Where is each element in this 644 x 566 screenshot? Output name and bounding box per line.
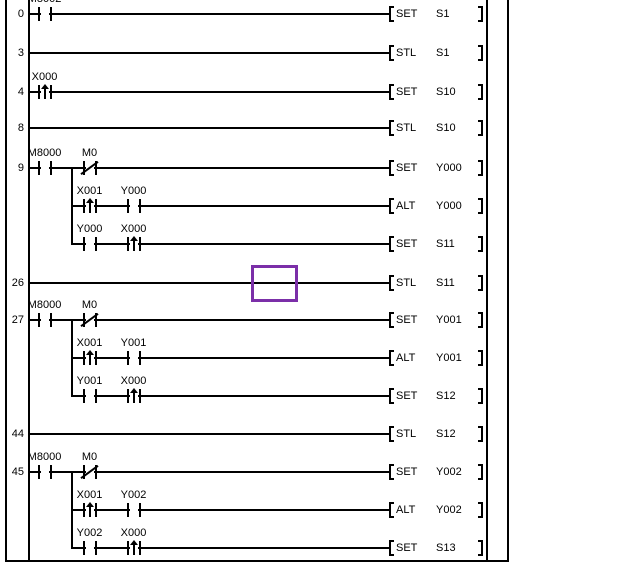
contact-no[interactable]: Y002 — [123, 488, 145, 525]
instruction-close-bracket — [478, 6, 483, 22]
instruction-open-bracket — [389, 198, 394, 214]
step-number: 0 — [2, 8, 24, 20]
contact-bar — [127, 237, 129, 251]
instruction-close-bracket — [478, 312, 483, 328]
instruction-open-bracket — [389, 350, 394, 366]
instruction-open-bracket — [389, 426, 394, 442]
up-arrow-icon — [130, 236, 138, 241]
contact-bar — [139, 237, 141, 251]
instruction-close-bracket — [478, 45, 483, 61]
contact-nc[interactable]: M0 — [79, 146, 101, 183]
contact-bar — [95, 237, 97, 251]
instruction-mnemonic[interactable]: STL — [396, 122, 416, 134]
instruction-close-bracket — [478, 464, 483, 480]
step-number: 4 — [2, 86, 24, 98]
contact-pulse[interactable]: X000 — [123, 222, 145, 259]
contact-bar — [50, 161, 52, 175]
instruction-close-bracket — [478, 236, 483, 252]
contact-no[interactable]: M8000 — [34, 146, 56, 183]
contact-label: Y002 — [104, 489, 164, 501]
contact-bar — [127, 351, 129, 365]
contact-label: M0 — [60, 299, 120, 311]
rung-line — [71, 243, 391, 245]
up-arrow-icon — [89, 355, 91, 365]
instruction-mnemonic[interactable]: SET — [396, 542, 417, 554]
instruction-operand[interactable]: Y000 — [436, 162, 462, 174]
contact-label: Y000 — [104, 185, 164, 197]
contact-no[interactable]: M8000 — [34, 298, 56, 335]
instruction-mnemonic[interactable]: SET — [396, 314, 417, 326]
contact-bar — [38, 465, 40, 479]
up-arrow-icon — [41, 84, 49, 89]
branch-line — [71, 167, 73, 245]
contact-bar — [139, 541, 141, 555]
instruction-close-bracket — [478, 502, 483, 518]
contact-bar — [50, 313, 52, 327]
instruction-mnemonic[interactable]: SET — [396, 86, 417, 98]
contact-bar — [50, 7, 52, 21]
editor-right-border — [507, 0, 509, 562]
rung-line — [28, 127, 391, 129]
step-number: 45 — [2, 466, 24, 478]
instruction-mnemonic[interactable]: STL — [396, 428, 416, 440]
contact-label: X000 — [15, 71, 75, 83]
instruction-open-bracket — [389, 160, 394, 176]
contact-no[interactable]: Y001 — [79, 374, 101, 411]
instruction-open-bracket — [389, 502, 394, 518]
instruction-open-bracket — [389, 45, 394, 61]
instruction-close-bracket — [478, 160, 483, 176]
rung-line — [71, 547, 391, 549]
instruction-mnemonic[interactable]: SET — [396, 390, 417, 402]
contact-bar — [83, 351, 85, 365]
instruction-mnemonic[interactable]: SET — [396, 466, 417, 478]
contact-bar — [95, 541, 97, 555]
step-number: 3 — [2, 47, 24, 59]
contact-bar — [38, 7, 40, 21]
contact-gap — [86, 242, 94, 246]
step-number: 27 — [2, 314, 24, 326]
contact-gap — [130, 508, 138, 512]
contact-bar — [83, 541, 85, 555]
step-number: 44 — [2, 428, 24, 440]
up-arrow-icon — [130, 388, 138, 393]
contact-bar — [127, 541, 129, 555]
contact-pulse[interactable]: X001 — [79, 488, 101, 525]
contact-bar — [83, 199, 85, 213]
step-number: 26 — [2, 277, 24, 289]
contact-bar — [95, 503, 97, 517]
instruction-open-bracket — [389, 464, 394, 480]
instruction-mnemonic[interactable]: ALT — [396, 352, 415, 364]
contact-pulse[interactable]: X000 — [123, 374, 145, 411]
instruction-operand[interactable]: S10 — [436, 122, 456, 134]
instruction-operand[interactable]: Y000 — [436, 200, 462, 212]
instruction-operand[interactable]: S11 — [436, 238, 455, 250]
rung-line — [28, 13, 391, 15]
contact-gap — [41, 318, 49, 322]
instruction-mnemonic[interactable]: STL — [396, 277, 416, 289]
instruction-open-bracket — [389, 275, 394, 291]
instruction-operand[interactable]: Y002 — [436, 504, 462, 516]
up-arrow-icon — [133, 241, 135, 251]
instruction-close-bracket — [478, 84, 483, 100]
rung-line — [71, 509, 391, 511]
contact-bar — [95, 199, 97, 213]
rung-line — [71, 395, 391, 397]
ladder-editor-canvas: 0SETS1M80023STLS14SETS10X0008STLS109SETY… — [0, 0, 644, 566]
contact-no[interactable]: Y001 — [123, 336, 145, 373]
contact-gap — [86, 394, 94, 398]
rung-line — [71, 357, 391, 359]
instruction-operand[interactable]: S1 — [436, 47, 449, 59]
instruction-operand[interactable]: S12 — [436, 428, 456, 440]
instruction-close-bracket — [478, 275, 483, 291]
contact-bar — [38, 161, 40, 175]
contact-no[interactable]: Y002 — [79, 526, 101, 563]
contact-bar — [139, 351, 141, 365]
branch-line — [71, 471, 73, 549]
instruction-operand[interactable]: S13 — [436, 542, 456, 554]
instruction-mnemonic[interactable]: SET — [396, 8, 417, 20]
contact-gap — [41, 166, 49, 170]
instruction-operand[interactable]: S11 — [436, 277, 455, 289]
contact-pulse[interactable]: X001 — [79, 184, 101, 221]
up-arrow-icon — [133, 393, 135, 403]
instruction-operand[interactable]: S12 — [436, 390, 456, 402]
right-power-rail — [486, 0, 488, 562]
rung-line — [28, 52, 391, 54]
rung-line — [71, 205, 391, 207]
up-arrow-icon — [89, 507, 91, 517]
up-arrow-icon — [89, 203, 91, 213]
contact-bar — [95, 389, 97, 403]
contact-bar — [83, 503, 85, 517]
instruction-operand[interactable]: S10 — [436, 86, 456, 98]
instruction-open-bracket — [389, 6, 394, 22]
contact-nc[interactable]: M0 — [79, 450, 101, 487]
up-arrow-icon — [130, 540, 138, 545]
rung-line — [28, 433, 391, 435]
contact-label: M8002 — [15, 0, 75, 5]
instruction-close-bracket — [478, 426, 483, 442]
instruction-close-bracket — [478, 540, 483, 556]
up-arrow-icon — [86, 198, 94, 203]
contact-bar — [95, 351, 97, 365]
instruction-operand[interactable]: Y001 — [436, 352, 462, 364]
instruction-mnemonic[interactable]: SET — [396, 238, 417, 250]
contact-bar — [139, 389, 141, 403]
contact-bar — [127, 389, 129, 403]
contact-label: M0 — [60, 451, 120, 463]
branch-line — [71, 319, 73, 397]
step-number: 8 — [2, 122, 24, 134]
step-number: 9 — [2, 162, 24, 174]
contact-pulse[interactable]: X000 — [34, 70, 56, 107]
contact-bar — [127, 199, 129, 213]
instruction-mnemonic[interactable]: STL — [396, 47, 416, 59]
instruction-open-bracket — [389, 312, 394, 328]
instruction-mnemonic[interactable]: ALT — [396, 504, 415, 516]
contact-gap — [130, 204, 138, 208]
contact-label: Y001 — [104, 337, 164, 349]
instruction-open-bracket — [389, 236, 394, 252]
contact-no[interactable]: M8000 — [34, 450, 56, 487]
instruction-operand[interactable]: S1 — [436, 8, 449, 20]
contact-bar — [83, 389, 85, 403]
contact-bar — [50, 465, 52, 479]
contact-no[interactable]: Y000 — [123, 184, 145, 221]
contact-pulse[interactable]: X000 — [123, 526, 145, 563]
contact-bar — [38, 85, 40, 99]
rung-line — [28, 91, 391, 93]
up-arrow-icon — [133, 545, 135, 555]
contact-no[interactable]: Y000 — [79, 222, 101, 259]
instruction-open-bracket — [389, 540, 394, 556]
up-arrow-icon — [86, 350, 94, 355]
contact-bar — [83, 237, 85, 251]
edit-cursor[interactable] — [251, 265, 298, 302]
contact-nc[interactable]: M0 — [79, 298, 101, 335]
contact-gap — [86, 546, 94, 550]
instruction-open-bracket — [389, 120, 394, 136]
contact-label: X000 — [104, 527, 164, 539]
instruction-close-bracket — [478, 120, 483, 136]
contact-pulse[interactable]: X001 — [79, 336, 101, 373]
instruction-close-bracket — [478, 350, 483, 366]
contact-bar — [50, 85, 52, 99]
contact-bar — [139, 199, 141, 213]
instruction-operand[interactable]: Y001 — [436, 314, 462, 326]
up-arrow-icon — [44, 89, 46, 99]
instruction-mnemonic[interactable]: SET — [396, 162, 417, 174]
contact-gap — [41, 12, 49, 16]
instruction-open-bracket — [389, 84, 394, 100]
contact-gap — [130, 356, 138, 360]
left-power-rail — [28, 0, 30, 562]
up-arrow-icon — [86, 502, 94, 507]
contact-no[interactable]: M8002 — [34, 0, 56, 29]
instruction-open-bracket — [389, 388, 394, 404]
contact-bar — [139, 503, 141, 517]
contact-label: M0 — [60, 147, 120, 159]
contact-bar — [127, 503, 129, 517]
instruction-operand[interactable]: Y002 — [436, 466, 462, 478]
rung-line — [28, 282, 391, 284]
instruction-close-bracket — [478, 198, 483, 214]
contact-label: X000 — [104, 375, 164, 387]
instruction-close-bracket — [478, 388, 483, 404]
contact-label: X000 — [104, 223, 164, 235]
instruction-mnemonic[interactable]: ALT — [396, 200, 415, 212]
contact-bar — [38, 313, 40, 327]
contact-gap — [41, 470, 49, 474]
